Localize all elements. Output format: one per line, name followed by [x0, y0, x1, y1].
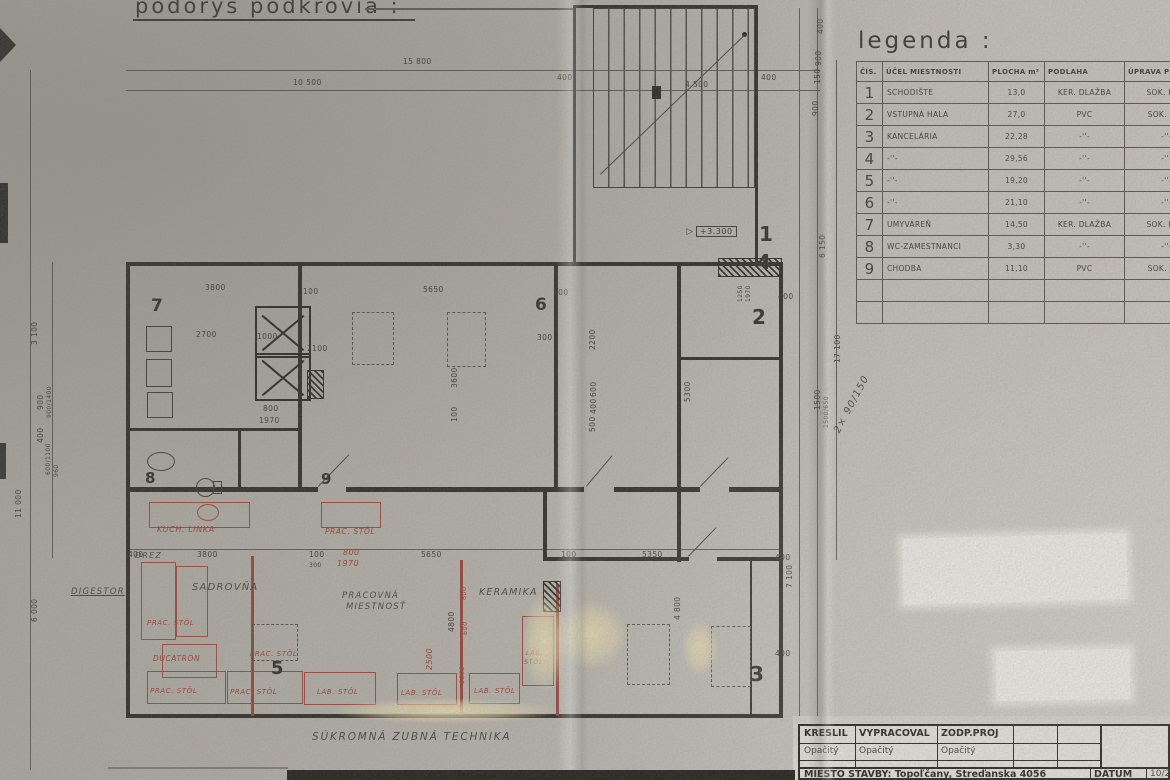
legend-cell-area: 27,0: [989, 104, 1045, 126]
legend-cell-finish: -''-: [1125, 236, 1170, 258]
scan-shadow: [0, 183, 8, 243]
room-number: 9: [321, 470, 331, 488]
dimension-line: [126, 549, 783, 550]
handwritten-label: PRACOVNÁ: [342, 591, 399, 601]
legend-cell-area: 11,10: [989, 258, 1045, 280]
legend-cell-floor: -''-: [1045, 170, 1125, 192]
legend-cell-num: 1: [857, 82, 883, 104]
elevation-marker: ▷ +3.300: [686, 226, 737, 237]
legend-cell-finish: [1125, 302, 1170, 324]
legend-row: 5-''-19,20-''--''-: [857, 170, 1170, 192]
wall: [126, 262, 783, 266]
legend-cell-area: 3,30: [989, 236, 1045, 258]
dimension-label: 3600: [450, 367, 459, 388]
washbasin: [147, 392, 173, 418]
toilet-tank: [213, 481, 222, 494]
room-number: 6: [535, 295, 547, 315]
legend-cell-finish: SOK. KER.: [1125, 214, 1170, 236]
wall: [573, 5, 758, 8]
door-swing: [700, 457, 729, 487]
legend-header-floor: PODLAHA: [1045, 62, 1125, 82]
door-swing: [688, 527, 717, 557]
legend-cell-purpose: SCHODIŠTE: [883, 82, 989, 104]
dashed-furniture: [447, 312, 486, 367]
bottom-note: SÚKROMNÁ ZUBNÁ TECHNIKA: [312, 731, 511, 743]
legend-header-row: ČÍS. ÚČEL MIESTNOSTI PLOCHA m² PODLAHA Ú…: [857, 62, 1170, 82]
legend-cell-floor: [1045, 280, 1125, 302]
dimension-label: 2700: [196, 330, 217, 339]
furniture-label: LAB. STÔL: [317, 688, 358, 696]
dimension-label: 10 500: [293, 78, 322, 87]
wall: [677, 357, 783, 360]
dimension-label: 600: [589, 381, 598, 397]
paper-edge-line: [365, 8, 575, 10]
dimension-label: 1970: [259, 416, 280, 425]
staircase: [593, 8, 755, 188]
dimension-line: [836, 60, 837, 560]
wall: [614, 487, 700, 492]
legend-cell-purpose: -''-: [883, 148, 989, 170]
title-block: KRESLIL VYPRACOVAL ZODP.PROJ Opačitý Opa…: [798, 724, 1170, 780]
furniture-label: DUCATRON: [153, 654, 200, 663]
room-number: 1: [759, 222, 773, 246]
legend-cell-num: 8: [857, 236, 883, 258]
legend-cell-num: 4: [857, 148, 883, 170]
dimension-label: 7 100: [785, 565, 794, 588]
dimension-label: 1000: [257, 332, 278, 341]
legend-cell-purpose: [883, 302, 989, 324]
dimension-label: 3 100: [30, 322, 39, 345]
wall: [126, 714, 783, 718]
dimension-label: 17 100: [833, 334, 842, 363]
handwritten-label: 2× 90/150: [832, 374, 872, 436]
legend-row: 6-''-21,10-''--''-: [857, 192, 1170, 214]
dimension-label: 400: [778, 292, 794, 301]
dimension-label: 11 000: [14, 489, 23, 518]
legend-empty-row: [857, 302, 1170, 324]
dimension-label: 400: [775, 649, 791, 658]
titleblock-line: [800, 760, 1100, 761]
legend-cell-area: 14,50: [989, 214, 1045, 236]
legend-cell-area: 19,20: [989, 170, 1045, 192]
dimension-label: 960: [53, 464, 60, 477]
dimension-label: 100: [450, 406, 459, 422]
legend-cell-purpose: VSTUPNÁ HALA: [883, 104, 989, 126]
titleblock-kreslil-label: KRESLIL: [804, 728, 848, 739]
legend-cell-num: 6: [857, 192, 883, 214]
legend-cell-area: 29,56: [989, 148, 1045, 170]
legend-cell-num: 3: [857, 126, 883, 148]
legend-cell-purpose: UMYVÁREŇ: [883, 214, 989, 236]
legend-row: 9CHODBA11,10PVCSOK. PVC: [857, 258, 1170, 280]
legend-cell-floor: KER. DLAŽBA: [1045, 82, 1125, 104]
legend-cell-area: 13,0: [989, 82, 1045, 104]
furniture-label: STÔL: [524, 658, 543, 666]
furniture-label: LAB.: [526, 649, 543, 657]
wall: [573, 5, 576, 265]
masonry-pier: [307, 370, 324, 399]
legend-cell-purpose: WC-ZAMESTNANCI: [883, 236, 989, 258]
furniture-label: PRAC. STÔL: [147, 619, 194, 627]
legend-cell-finish: SOK. KER.: [1125, 82, 1170, 104]
titleblock-line: [800, 767, 1170, 769]
legend-cell-num: 7: [857, 214, 883, 236]
legend-row: 4-''-29,56-''--''-: [857, 148, 1170, 170]
legend-cell-floor: -''-: [1045, 148, 1125, 170]
dimension-label: 1500: [813, 389, 822, 410]
furniture-label: LAB. STÔL: [401, 689, 442, 697]
legend-cell-area: [989, 280, 1045, 302]
work-table: [321, 502, 381, 528]
dimension-label: 800: [343, 548, 359, 557]
legend-header-cis: ČÍS.: [857, 62, 883, 82]
elevation-value: +3.300: [696, 226, 737, 237]
furniture-label: PRAC. STÔL: [230, 688, 277, 696]
dimension-label: 100: [553, 288, 569, 297]
legend-empty-row: [857, 280, 1170, 302]
wall: [126, 428, 302, 431]
titleblock-line: [1146, 767, 1147, 780]
red-partition-wall: [460, 560, 463, 713]
legend-cell-finish: -''-: [1125, 148, 1170, 170]
stair-post: [652, 86, 661, 99]
dimension-line: [817, 8, 818, 730]
handwritten-label: KERAMIKA: [479, 587, 538, 598]
dimension-label: 900: [811, 100, 820, 116]
legend-cell-floor: [1045, 302, 1125, 324]
dimension-label: 6 000: [30, 599, 39, 622]
handwritten-label: DIGESTOR: [71, 587, 125, 597]
legend-cell-num: 9: [857, 258, 883, 280]
dimension-label: 100: [309, 550, 325, 559]
legend-cell-finish: SOK. PVC: [1125, 258, 1170, 280]
room-number: 8: [145, 469, 155, 487]
handwritten-label: SADROVŇA: [192, 582, 258, 593]
dimension-label: 1600: [458, 666, 466, 684]
legend-cell-finish: -''-: [1125, 170, 1170, 192]
furniture-label: PRAC. STÔL: [150, 687, 197, 695]
dashed-furniture: [352, 312, 394, 365]
wall: [755, 5, 758, 265]
dimension-label: 5650: [421, 550, 442, 559]
dimension-label: 2100: [307, 344, 328, 353]
legend-cell-floor: -''-: [1045, 192, 1125, 214]
dashed-furniture: [711, 626, 751, 687]
legend-table: ČÍS. ÚČEL MIESTNOSTI PLOCHA m² PODLAHA Ú…: [856, 61, 1170, 324]
wall: [677, 262, 681, 562]
room-number: 4: [757, 250, 771, 274]
wall: [238, 428, 241, 490]
dimension-label: 4 800: [673, 597, 682, 620]
legend-cell-floor: KER. DLAŽBA: [1045, 214, 1125, 236]
washbasin: [146, 326, 172, 352]
dimension-label: 4800: [447, 611, 456, 632]
furniture-label: KUCH. LINKA: [157, 525, 215, 534]
washbasin: [146, 359, 172, 387]
scan-shadow: [287, 770, 795, 780]
dimension-label: 150: [813, 68, 822, 84]
handwritten-label: DREZ: [135, 551, 162, 560]
legend-title: legenda :: [858, 28, 1170, 54]
work-table: [141, 562, 176, 640]
legend-cell-purpose: -''-: [883, 192, 989, 214]
dimension-label: 3800: [197, 550, 218, 559]
titleblock-line: [855, 726, 856, 767]
dimension-label: 1970: [745, 285, 752, 302]
dimension-label: 100: [561, 550, 577, 559]
dimension-label: 600/1100: [45, 443, 52, 475]
titleblock-vypracoval-value: Opačitý: [859, 746, 894, 756]
legend-cell-area: 21,10: [989, 192, 1045, 214]
titleblock-kreslil-value: Opačitý: [804, 746, 839, 756]
dimension-label: 5650: [423, 285, 444, 294]
legend-cell-purpose: -''-: [883, 170, 989, 192]
dimension-label: 400: [589, 398, 598, 414]
legend-header-purpose: ÚČEL MIESTNOSTI: [883, 62, 989, 82]
dimension-label: 400: [816, 18, 825, 34]
titleblock-line: [1090, 767, 1091, 780]
dimension-label: 900: [36, 394, 45, 410]
furniture-label: LAB. STÔL: [474, 687, 515, 695]
wall: [346, 487, 584, 492]
dimension-label: 5350: [642, 550, 663, 559]
titleblock-line: [1013, 726, 1014, 767]
wall: [729, 487, 783, 492]
titleblock-line: [1057, 726, 1058, 767]
legend-cell-purpose: [883, 280, 989, 302]
whiteout-patch: [996, 649, 1131, 701]
furniture-label: PRAC. STÔL: [250, 650, 297, 658]
dimension-label: 500: [588, 416, 597, 432]
dimension-label: 400: [557, 73, 573, 82]
scanned-floorplan-page: podorys podkrovia :: [0, 0, 1170, 780]
legend-header-finish: ÚPRAVA POVRCHOV: [1125, 62, 1170, 82]
stair-walk-dot: [742, 32, 747, 37]
elevation-arrow-icon: ▷: [686, 227, 693, 237]
furniture-label: PRAC. STÔL: [325, 527, 375, 536]
titleblock-line: [800, 743, 1100, 744]
dimension-label: 400: [761, 73, 777, 82]
legend-row: 3KANCELÁRIA22,28-''--''-: [857, 126, 1170, 148]
dimension-label: 400: [36, 427, 45, 443]
titleblock-line: [1100, 726, 1102, 767]
dimension-label: 300: [537, 333, 553, 342]
door-swing: [586, 455, 613, 486]
dimension-label: 400: [775, 553, 791, 562]
dimension-label: 800: [263, 404, 279, 413]
legend-cell-num: 2: [857, 104, 883, 126]
titleblock-zodpproj-value: Opačitý: [941, 746, 976, 756]
whiteout-patch: [902, 533, 1128, 605]
legend-cell-finish: SOK. PVC: [1125, 104, 1170, 126]
legend-cell-finish: -''-: [1125, 126, 1170, 148]
titleblock-date-label: DÁTUM: [1094, 769, 1132, 780]
scan-shadow: [0, 443, 6, 479]
dimension-line: [799, 8, 800, 730]
dimension-label: 900/1400: [46, 386, 53, 418]
legend-row: 7UMYVÁREŇ14,50KER. DLAŽBASOK. KER.: [857, 214, 1170, 236]
dimension-label: 15 800: [403, 57, 432, 66]
dashed-furniture: [627, 624, 670, 685]
legend-cell-finish: -''-: [1125, 192, 1170, 214]
legend-cell-floor: PVC: [1045, 258, 1125, 280]
legend-cell-purpose: KANCELÁRIA: [883, 126, 989, 148]
room-number: 7: [151, 296, 163, 316]
titleblock-line: [937, 726, 938, 767]
paper-edge-line: [108, 767, 288, 769]
dimension-label: 1250: [737, 285, 744, 302]
titleblock-date-value: 10/200: [1150, 769, 1170, 779]
dimension-label: 1500/650: [823, 396, 830, 428]
legend-cell-num: [857, 280, 883, 302]
dimension-label: 300: [309, 562, 322, 569]
legend-row: 1SCHODIŠTE13,0KER. DLAŽBASOK. KER.: [857, 82, 1170, 104]
dimension-label: 5300: [683, 381, 692, 402]
shaft-box: [255, 353, 311, 401]
dimension-line: [30, 70, 31, 770]
window-hatch: [718, 258, 782, 277]
legend: legenda : ČÍS. ÚČEL MIESTNOSTI PLOCHA m²…: [856, 28, 1170, 324]
dimension-label: 900: [814, 50, 823, 66]
dimension-label: 2500: [425, 648, 434, 670]
masonry-pier: [543, 581, 561, 612]
titleblock-site: MIESTO STAVBY: Topoľčany, Streďanska 405…: [804, 769, 1046, 780]
dimension-label: 2200: [588, 329, 597, 350]
legend-row: 2VSTUPNÁ HALA27,0PVCSOK. PVC: [857, 104, 1170, 126]
room-number: 2: [752, 305, 766, 329]
wall: [543, 490, 547, 561]
legend-header-area: PLOCHA m²: [989, 62, 1045, 82]
legend-row: 8WC-ZAMESTNANCI3,30-''--''-: [857, 236, 1170, 258]
handwritten-label: MIESTNOSŤ: [346, 602, 406, 612]
dimension-label: 3800: [205, 283, 226, 292]
legend-cell-finish: [1125, 280, 1170, 302]
legend-cell-floor: -''-: [1045, 126, 1125, 148]
titleblock-zodpproj-label: ZODP.PROJ: [941, 728, 999, 739]
dimension-label: 6 150: [818, 235, 827, 258]
dimension-label: 1970: [337, 559, 359, 568]
room-number: 3: [750, 662, 764, 686]
dimension-label: 600: [460, 586, 468, 600]
wall: [126, 487, 318, 492]
legend-cell-area: 22,28: [989, 126, 1045, 148]
legend-cell-floor: PVC: [1045, 104, 1125, 126]
dimension-label: 100: [303, 287, 319, 296]
dimension-label: 600: [461, 621, 469, 635]
legend-cell-area: [989, 302, 1045, 324]
legend-cell-num: 5: [857, 170, 883, 192]
titleblock-vypracoval-label: VYPRACOVAL: [859, 728, 930, 739]
dimension-label: 4 500: [685, 80, 708, 89]
room-number: 5: [271, 658, 284, 679]
legend-cell-purpose: CHODBA: [883, 258, 989, 280]
legend-cell-num: [857, 302, 883, 324]
legend-cell-floor: -''-: [1045, 236, 1125, 258]
